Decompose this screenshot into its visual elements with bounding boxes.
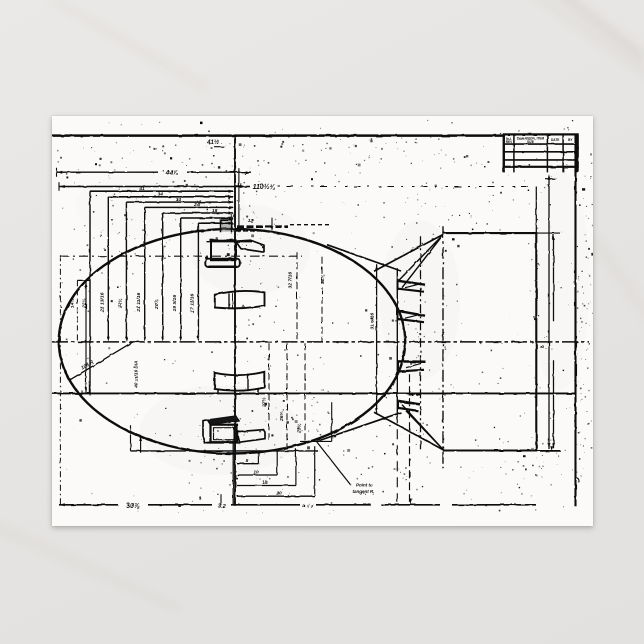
svg-text:22⅞: 22⅞ [82,298,88,309]
svg-text:tangent R.: tangent R. [352,489,374,494]
svg-text:SIZE: SIZE [527,140,534,144]
svg-text:22¾: 22¾ [118,298,124,309]
svg-text:34: 34 [176,197,182,203]
svg-text:30⅞: 30⅞ [126,503,140,510]
svg-text:18: 18 [212,208,218,214]
svg-text:8: 8 [540,345,546,348]
svg-text:Point to: Point to [356,482,373,487]
svg-text:17 11/16: 17 11/16 [190,293,196,312]
svg-text:16: 16 [230,213,236,219]
svg-text:21 11/16: 21 11/16 [136,292,142,312]
svg-text:5: 5 [246,458,249,464]
svg-text:41: 41 [138,186,145,192]
svg-text:DATE: DATE [551,138,559,142]
svg-text:32¼: 32¼ [320,274,326,284]
svg-text:REV: REV [506,140,513,144]
svg-text:44⅞: 44⅞ [165,169,179,176]
svg-text:32 7/16: 32 7/16 [288,271,294,288]
svg-text:BY: BY [568,138,573,142]
svg-text:31 5/16: 31 5/16 [369,312,375,329]
svg-text:20⅜: 20⅜ [154,298,160,310]
svg-text:34: 34 [158,191,164,197]
svg-text:12: 12 [248,218,254,224]
svg-text:22 13/16: 22 13/16 [100,292,106,313]
svg-text:15: 15 [262,480,268,486]
svg-text:40 13/16 DIA: 40 13/16 DIA [134,361,139,389]
svg-text:27½: 27½ [261,397,268,408]
svg-text:25¾: 25¾ [297,423,303,434]
svg-text:26⅝: 26⅝ [279,410,285,422]
svg-text:110½¾: 110½¾ [253,183,276,191]
svg-text:24: 24 [193,202,200,208]
svg-text:19 5/16: 19 5/16 [172,294,178,311]
svg-text:14⅞: 14⅞ [70,298,76,308]
svg-text:10: 10 [253,469,259,475]
svg-text:3.2: 3.2 [218,504,225,510]
svg-text:a √ 5: a √ 5 [303,503,314,509]
svg-text:41½: 41½ [206,139,219,146]
